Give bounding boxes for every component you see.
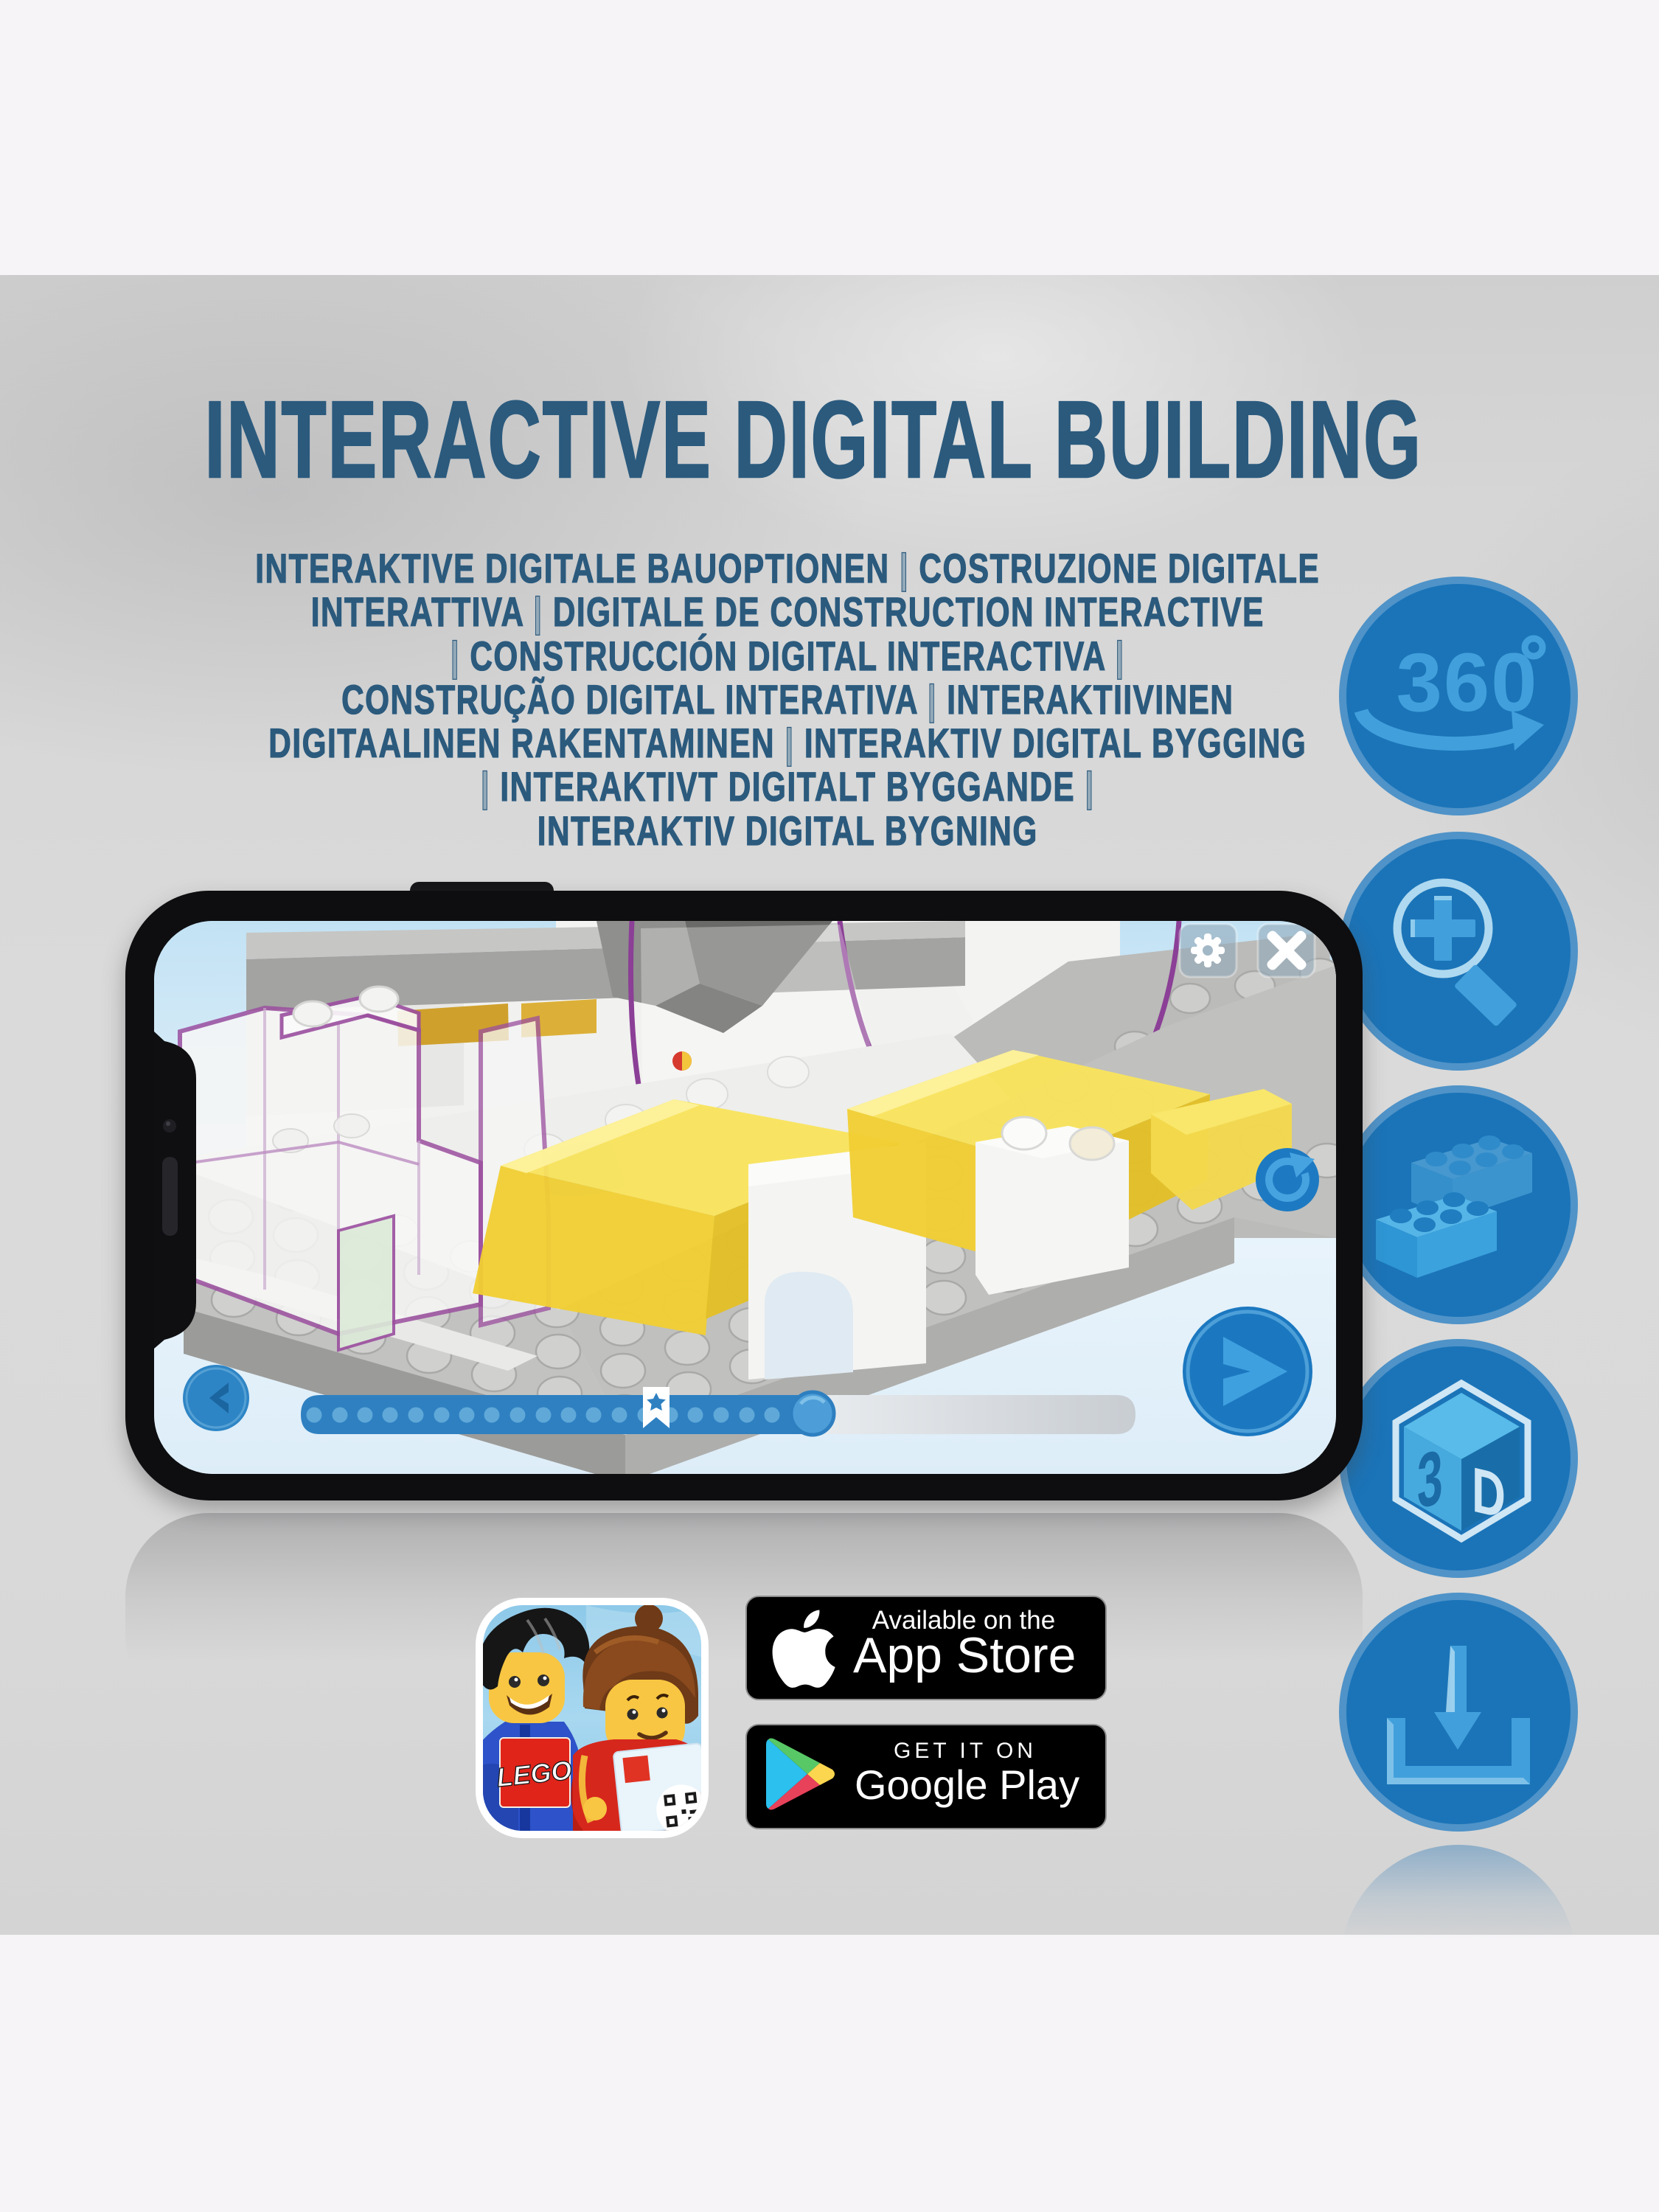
svg-text:D: D <box>1472 1454 1506 1532</box>
svg-text:3: 3 <box>1417 1434 1443 1526</box>
